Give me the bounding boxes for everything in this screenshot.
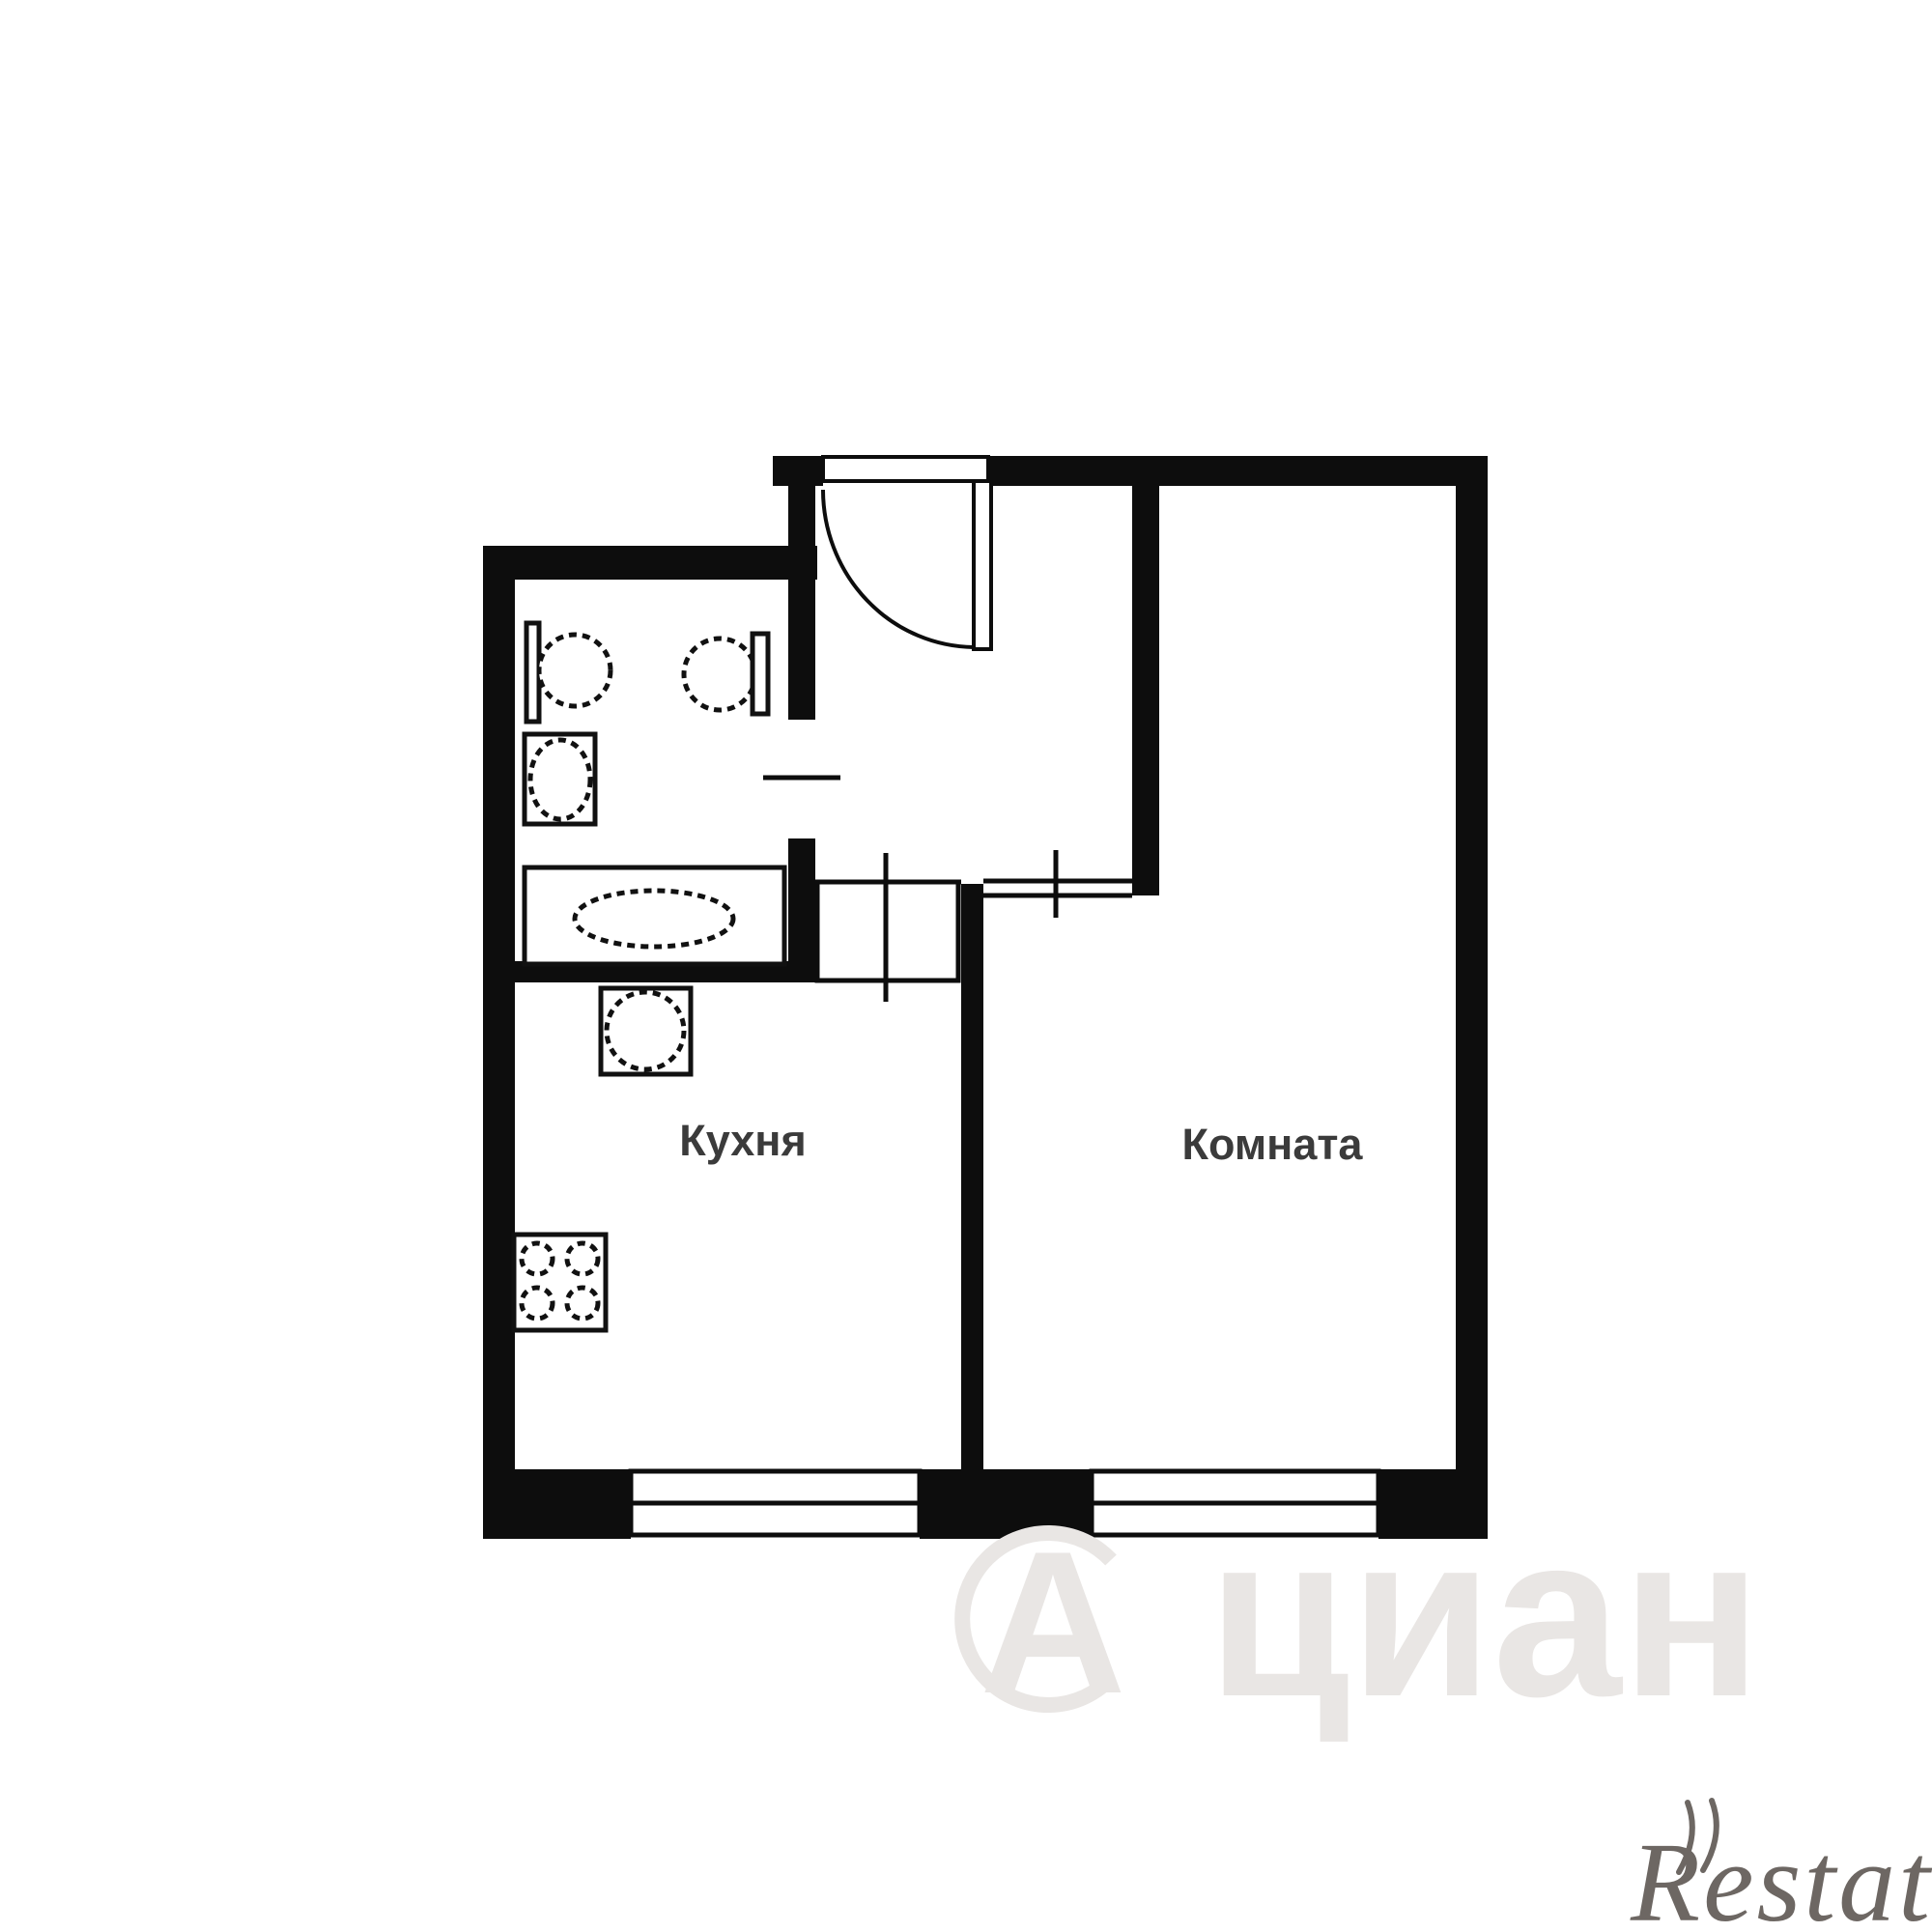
floor-plan-page: Кухня Комната А циан Restate (0, 0, 1932, 1932)
kitchen-fixtures (514, 988, 691, 1330)
entrance-door-opening (823, 457, 988, 481)
restate-logo-text: Restate (1630, 1819, 1932, 1932)
washing-machine-drum-icon (530, 740, 590, 819)
stove-burner-icon (522, 1288, 553, 1319)
toilet-tank-icon (753, 634, 768, 714)
watermark-cian: А циан (962, 1486, 1761, 1745)
kitchen-label: Кухня (679, 1116, 807, 1165)
bathtub-basin-icon (575, 891, 733, 947)
stove-burner-icon (567, 1288, 598, 1319)
cian-logo-text: циан (1207, 1486, 1762, 1745)
entrance-door (823, 457, 991, 649)
wall-bathroom-top (483, 546, 817, 580)
washbasin-bowl-icon (539, 635, 611, 706)
wall-hall-room (1132, 486, 1159, 895)
kitchen-sink-bowl-icon (607, 992, 684, 1069)
wall-top-right (988, 456, 1488, 486)
bathroom-fixtures (525, 623, 784, 964)
watermark-restate: Restate (1630, 1801, 1932, 1932)
stove-burner-icon (522, 1243, 553, 1274)
wall-bathroom-hall-lower (788, 838, 815, 982)
door-swing-arc-icon (823, 490, 974, 647)
toilet-icon (684, 639, 755, 710)
wall-bathroom-hall-upper (788, 456, 815, 720)
stove-burner-icon (567, 1243, 598, 1274)
living-room-label: Комната (1182, 1120, 1364, 1169)
entrance-door-leaf (974, 481, 991, 649)
interior-openings (763, 778, 1132, 1002)
wall-kitchen-room (961, 884, 983, 1469)
cian-logo-a: А (980, 1509, 1126, 1736)
wall-bottom-left (483, 1469, 631, 1539)
floor-plan-canvas: Кухня Комната А циан Restate (0, 0, 1932, 1932)
wall-right (1456, 456, 1488, 1539)
wall-left (483, 546, 515, 1539)
